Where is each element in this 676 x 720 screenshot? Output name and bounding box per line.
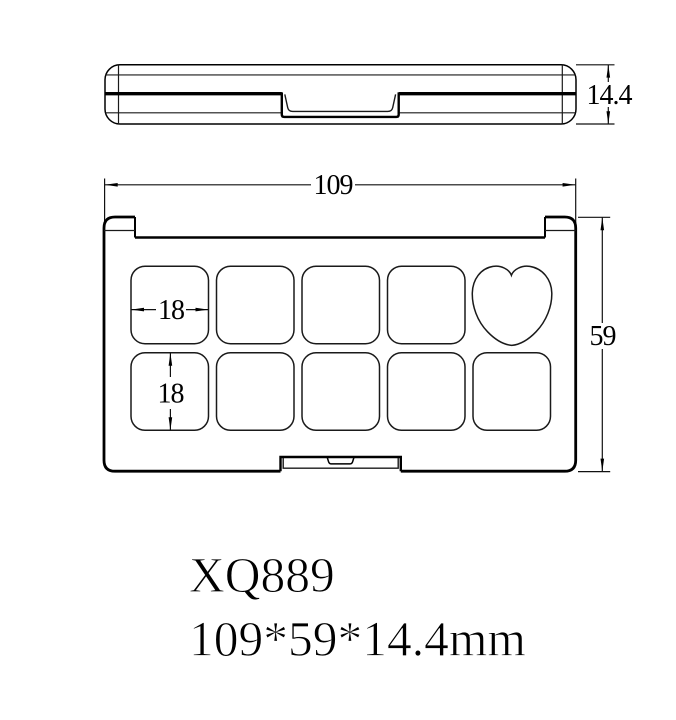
svg-text:18: 18: [158, 379, 184, 410]
svg-text:109: 109: [314, 170, 353, 201]
svg-text:59: 59: [590, 321, 616, 352]
svg-text:18: 18: [158, 295, 184, 326]
svg-text:14.4: 14.4: [587, 80, 633, 111]
svg-text:109*59*14.4mm: 109*59*14.4mm: [189, 611, 526, 666]
svg-text:XQ889: XQ889: [189, 548, 335, 603]
